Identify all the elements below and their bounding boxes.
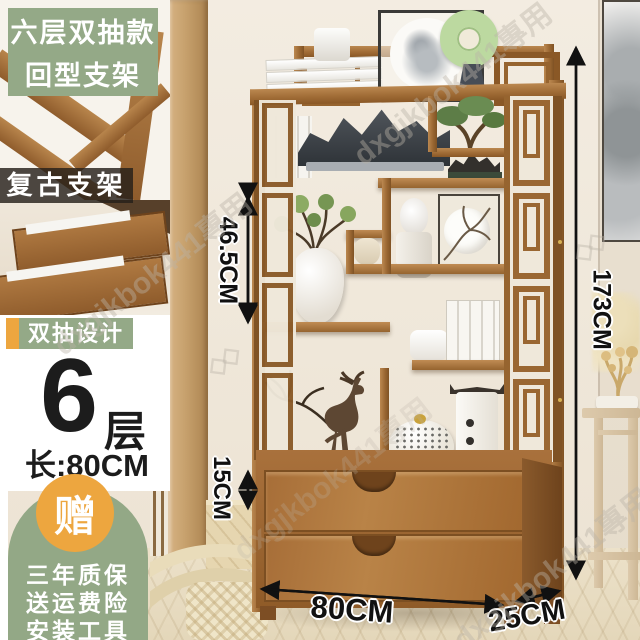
- shelf-divider: [382, 178, 391, 274]
- shelf-divider: [428, 96, 437, 152]
- lattice-block: [513, 193, 550, 279]
- product-listing-image: 六层双抽款 回型支架 复古支架 双抽设计 6 层 长:80CM 赠 三年质保 送…: [0, 0, 640, 640]
- lattice-inner: [523, 110, 540, 158]
- white-ceramic-box: [314, 28, 350, 61]
- shelf-board: [378, 178, 508, 188]
- console-table-shelf: [588, 552, 640, 560]
- shelf-board: [432, 148, 508, 157]
- lattice-block: [513, 100, 550, 186]
- left-lattice-panel: [254, 100, 296, 460]
- shelf-board: [346, 264, 508, 274]
- console-table-leg: [594, 418, 603, 588]
- rock-base: [306, 162, 444, 171]
- right-lattice-panel: [504, 96, 562, 462]
- lattice-block: [262, 103, 293, 187]
- bonsai-plant: [432, 94, 508, 150]
- badge-line: 回型支架: [8, 54, 158, 93]
- branch-decoration: [440, 200, 494, 264]
- console-table-leg: [628, 418, 638, 600]
- buddha-head-statue: [400, 198, 428, 234]
- feature-badge-top: 六层双抽款 回型支架: [8, 8, 158, 96]
- console-table-rail: [598, 430, 638, 435]
- shelf-board: [412, 360, 508, 370]
- gold-jar-knob: [414, 414, 426, 424]
- framed-artwork: [602, 0, 640, 242]
- shelf-divider: [380, 368, 389, 456]
- lattice-block: [262, 373, 293, 457]
- badge-line: 六层双抽款: [8, 11, 158, 50]
- lattice-block: [513, 286, 550, 372]
- brass-screw: [558, 240, 562, 244]
- lattice-block: [262, 283, 293, 367]
- books-row: [446, 300, 500, 362]
- shelf-divider: [346, 230, 354, 274]
- shelf-leg: [260, 606, 276, 620]
- retro-label: 复古支架: [0, 168, 133, 203]
- wood-trim-strip: [168, 0, 208, 556]
- deer-figurine: [308, 370, 384, 462]
- lattice-inner: [523, 389, 540, 437]
- dim-label-inner-height: 46.5CM: [213, 213, 242, 308]
- paper: [25, 210, 130, 235]
- gift-badge: 赠: [36, 474, 114, 552]
- left-column-background: [0, 491, 8, 640]
- console-table-top: [582, 408, 640, 418]
- gift-line: 安装工具: [8, 612, 148, 640]
- dim-label-drawer-height: 15CM: [207, 453, 235, 523]
- dim-label-width: 80CM: [306, 589, 398, 631]
- drawer-side-face: [522, 458, 562, 612]
- abstract-painting: [604, 2, 640, 240]
- orange-accent-bar: [6, 318, 19, 349]
- lattice-inner: [523, 296, 540, 344]
- brass-screw: [558, 398, 562, 402]
- cream-jar: [354, 238, 380, 265]
- lantern-dots: [466, 414, 490, 422]
- dim-label-total-height: 173CM: [587, 265, 616, 355]
- layer-count: 6: [26, 344, 112, 454]
- drawer-lower: [264, 534, 526, 602]
- drawer-upper: [264, 470, 526, 532]
- jade-bi-disc: [440, 10, 498, 68]
- detail-photo-drawers: [0, 200, 170, 318]
- lattice-inner: [523, 203, 540, 251]
- lattice-block: [262, 193, 293, 277]
- white-cushion: [410, 330, 448, 360]
